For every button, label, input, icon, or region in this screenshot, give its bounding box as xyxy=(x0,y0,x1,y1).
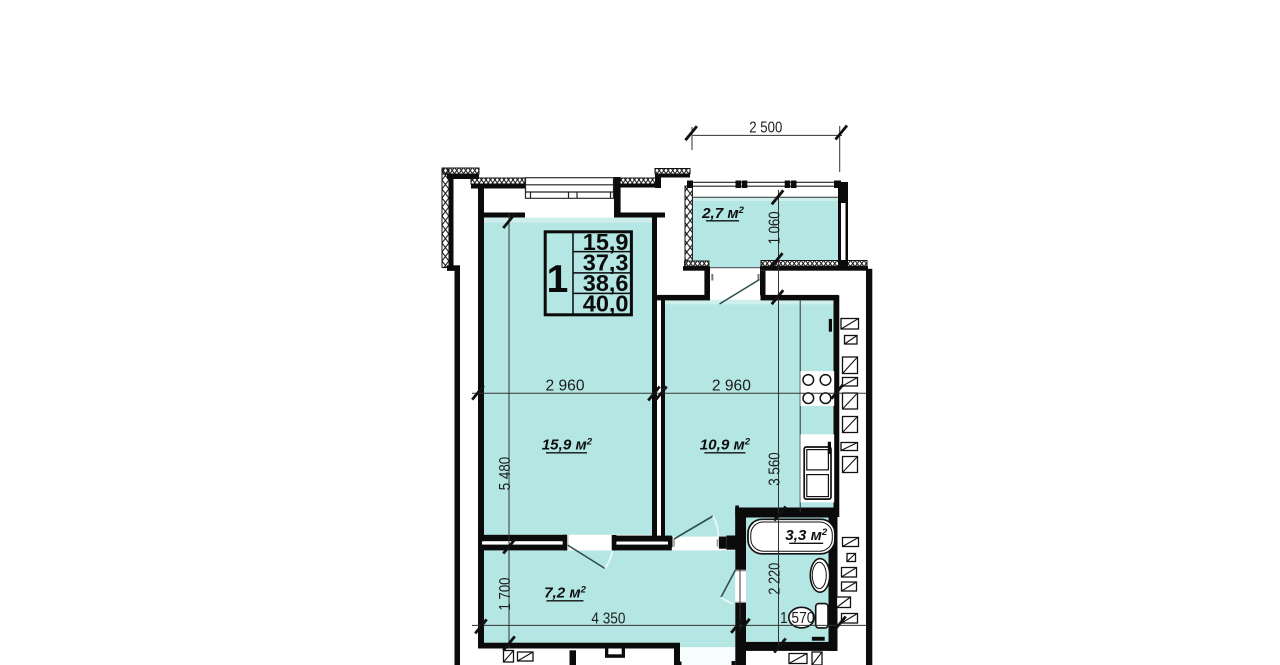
svg-text:4 350: 4 350 xyxy=(591,611,625,628)
svg-text:15,9 м2: 15,9 м2 xyxy=(542,437,593,454)
svg-text:2 500: 2 500 xyxy=(749,120,782,137)
svg-text:40,0: 40,0 xyxy=(583,291,629,317)
svg-text:1 060: 1 060 xyxy=(767,211,784,244)
svg-text:1: 1 xyxy=(547,258,569,301)
svg-text:5 480: 5 480 xyxy=(497,456,514,490)
svg-text:3,3 м2: 3,3 м2 xyxy=(785,527,828,544)
svg-text:1 700: 1 700 xyxy=(497,577,514,610)
svg-text:2 960: 2 960 xyxy=(712,378,751,395)
svg-text:1 570: 1 570 xyxy=(780,610,815,627)
svg-text:3 560: 3 560 xyxy=(767,452,784,486)
svg-text:7,2 м2: 7,2 м2 xyxy=(544,585,587,602)
svg-text:10,9 м2: 10,9 м2 xyxy=(700,437,751,454)
svg-text:2,7 м2: 2,7 м2 xyxy=(701,205,745,222)
svg-text:2 960: 2 960 xyxy=(546,378,585,395)
svg-text:2 220: 2 220 xyxy=(767,562,784,594)
